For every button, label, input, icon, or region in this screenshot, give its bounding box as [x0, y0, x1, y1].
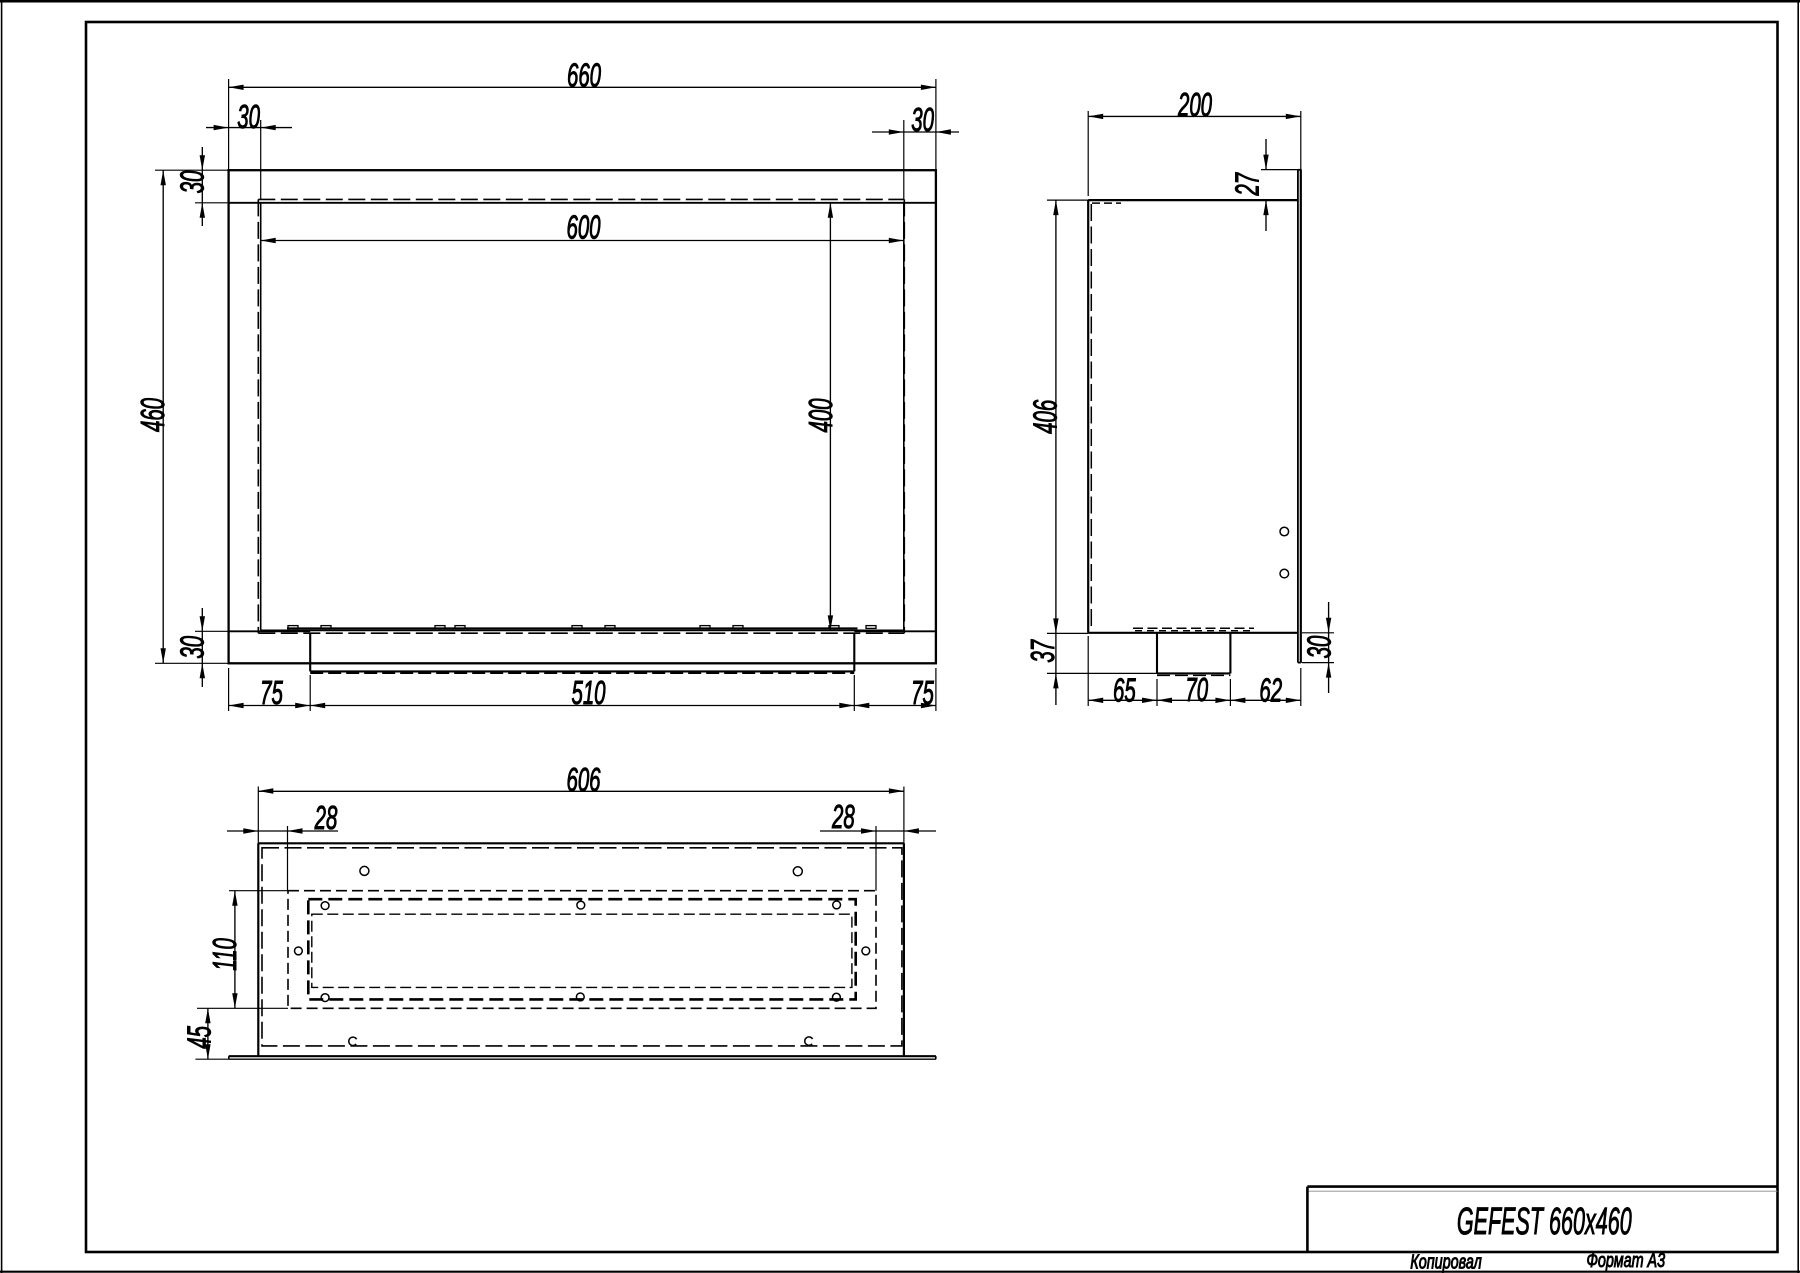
svg-text:406: 406 [1027, 399, 1064, 434]
svg-text:200: 200 [1177, 86, 1212, 123]
svg-text:600: 600 [566, 208, 601, 245]
svg-text:Формат А3: Формат А3 [1586, 1249, 1665, 1272]
svg-text:460: 460 [134, 397, 171, 432]
svg-text:GEFEST 660x460: GEFEST 660x460 [1457, 1199, 1632, 1242]
svg-text:75: 75 [911, 674, 934, 711]
svg-text:Копировал: Копировал [1410, 1250, 1482, 1273]
svg-text:28: 28 [314, 799, 338, 836]
svg-text:30: 30 [911, 101, 934, 138]
svg-text:30: 30 [237, 98, 260, 135]
svg-text:30: 30 [173, 635, 210, 658]
svg-text:30: 30 [173, 170, 210, 193]
svg-text:70: 70 [1185, 671, 1208, 708]
svg-text:27: 27 [1229, 172, 1266, 197]
svg-text:37: 37 [1024, 639, 1061, 663]
svg-text:660: 660 [567, 56, 602, 93]
svg-text:75: 75 [260, 674, 283, 711]
svg-text:30: 30 [1300, 635, 1337, 658]
svg-text:400: 400 [802, 398, 839, 433]
svg-text:65: 65 [1113, 671, 1136, 708]
svg-text:62: 62 [1259, 671, 1282, 708]
svg-text:110: 110 [206, 938, 243, 971]
svg-text:606: 606 [566, 761, 601, 798]
svg-text:510: 510 [571, 674, 606, 711]
svg-text:28: 28 [831, 798, 855, 835]
svg-text:45: 45 [180, 1025, 217, 1048]
